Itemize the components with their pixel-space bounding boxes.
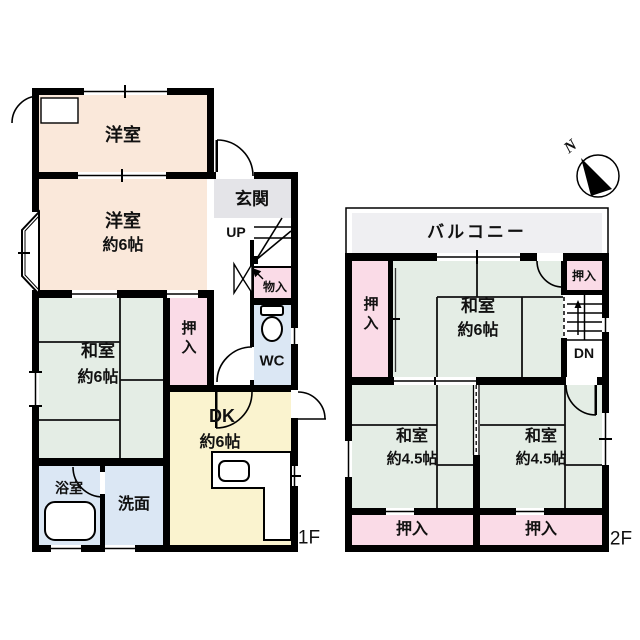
label-yoshitsu-south: 洋室 (105, 212, 141, 230)
bathtub-icon (45, 502, 95, 540)
label-washitsu45-west-size: 約4.5帖 (387, 452, 438, 467)
label-washitsu-1f: 和室 (81, 343, 115, 360)
label-washitsu6-2f-size: 約6帖 (458, 323, 499, 339)
f1-stairs-up (250, 218, 291, 264)
compass-needle-icon (581, 158, 612, 196)
label-oshiire-2f-se: 押入 (525, 522, 557, 538)
label-stairs-dn: DN (574, 346, 594, 360)
room-yoshitsu-south (39, 179, 207, 290)
monoire-bifold-door (234, 264, 252, 293)
label-dk-size: 約6帖 (200, 435, 241, 451)
wc-door (217, 347, 252, 382)
front-door (216, 140, 254, 176)
label-oshiire-2f-ne: 押入 (572, 270, 596, 282)
label-washitsu6-2f: 和室 (461, 298, 495, 315)
label-washitsu45-east-size: 約4.5帖 (516, 452, 567, 467)
back-door (298, 392, 326, 419)
label-oshiire-1f: 押入 (181, 320, 196, 358)
label-genkan: 玄関 (235, 191, 269, 208)
label-stairs-up: UP (226, 225, 245, 239)
label-washitsu45-west: 和室 (396, 429, 428, 445)
f2-stairs-down (567, 295, 602, 340)
room-washitsu6-2f (393, 261, 563, 377)
label-senmen: 洗面 (118, 497, 150, 513)
label-oshiire-2f-west: 押入 (363, 296, 378, 334)
toilet-icon (261, 306, 283, 341)
label-washitsu45-east: 和室 (525, 429, 557, 445)
floorplan: 洋室 洋室 約6帖 玄関 UP 物入 押入 WC 和室 約6帖 DK 約6帖 浴… (0, 0, 640, 640)
label-yokushitsu: 浴室 (55, 481, 83, 495)
label-wc: WC (260, 354, 285, 369)
corner-door (12, 96, 78, 123)
bay-window (18, 212, 39, 294)
label-oshiire-2f-sw: 押入 (396, 522, 428, 538)
label-floor-2f: 2F (610, 530, 632, 549)
label-yoshitsu-south-size: 約6帖 (103, 238, 144, 254)
room-washitsu45-east (480, 385, 602, 508)
compass (577, 155, 619, 197)
kitchen-sink-icon (219, 461, 249, 481)
label-washitsu-1f-size: 約6帖 (78, 370, 119, 386)
stairs-arrow-icon (575, 300, 582, 335)
label-floor-1f: 1F (298, 529, 320, 548)
room-washitsu45-west (352, 385, 473, 508)
label-yoshitsu-north: 洋室 (105, 126, 141, 144)
label-dk: DK (209, 407, 235, 425)
label-monoire: 物入 (263, 281, 287, 293)
label-balcony: バルコニー (427, 224, 527, 241)
